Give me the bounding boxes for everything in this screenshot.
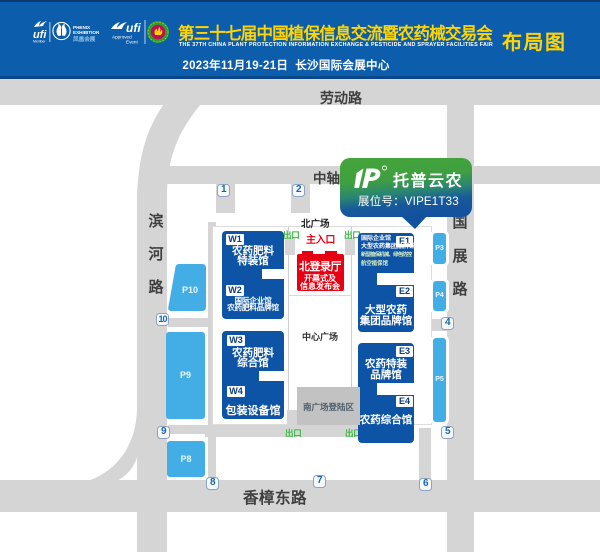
svg-text:Member: Member bbox=[33, 40, 46, 44]
svg-text:P10: P10 bbox=[182, 285, 198, 295]
svg-text:ufi: ufi bbox=[126, 21, 141, 35]
svg-text:EXHIBITION: EXHIBITION bbox=[73, 30, 100, 35]
svg-text:凤凰会展: 凤凰会展 bbox=[73, 35, 96, 43]
svg-text:Event: Event bbox=[126, 40, 138, 45]
